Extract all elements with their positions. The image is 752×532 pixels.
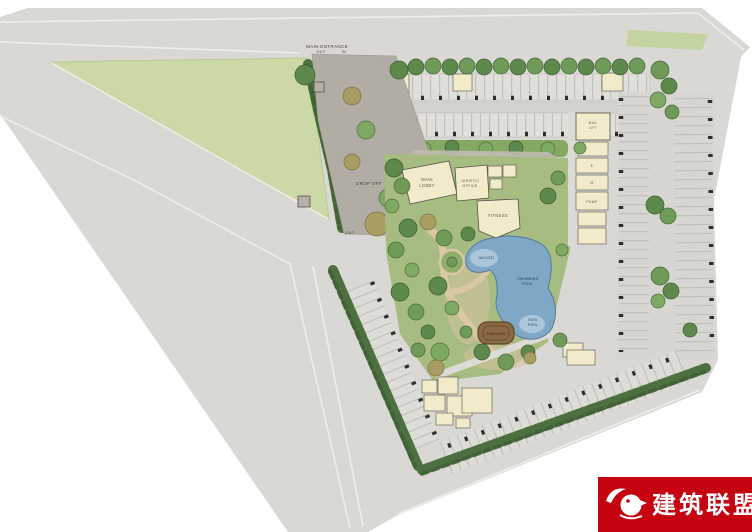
kids-pool-label: KIDS xyxy=(528,318,538,322)
service-room xyxy=(488,166,502,177)
main-lobby-label: MAIN xyxy=(421,177,433,182)
jacuzzi-label: JACUZZI xyxy=(478,256,494,260)
entry-tree xyxy=(390,61,408,79)
parking-east xyxy=(618,92,714,358)
east-court-tree xyxy=(574,142,586,154)
watermark-banner: 建筑联盟 xyxy=(598,477,752,532)
gate-in-label: IN xyxy=(342,50,346,54)
entry-tree xyxy=(295,65,315,85)
juristic-office-label: JURISTIC xyxy=(461,179,480,183)
east-room xyxy=(578,228,606,244)
pump-label: PUMP xyxy=(586,200,598,204)
drive-tree xyxy=(343,87,361,105)
drive-tree xyxy=(357,121,375,139)
site-plan: MAIN ENTRANCE OUT IN DROP OFF OUT MAIN L… xyxy=(0,0,752,532)
side-out-label: OUT xyxy=(346,231,355,235)
svg-text:POOL: POOL xyxy=(528,323,539,327)
pavilion-label: PAVILION xyxy=(487,332,506,336)
room-e-label: E xyxy=(591,164,594,168)
watermark-text: 建筑联盟 xyxy=(652,491,752,519)
drive-tree xyxy=(344,154,360,170)
service-room xyxy=(490,179,502,189)
svg-text:LOBBY: LOBBY xyxy=(419,183,434,188)
guard-booth xyxy=(298,196,310,207)
utility-room xyxy=(602,73,623,91)
parking-north xyxy=(394,73,650,137)
mail-lift-label: MAIL xyxy=(589,121,598,125)
site-plan-page: MAIN ENTRANCE OUT IN DROP OFF OUT MAIN L… xyxy=(0,0,752,532)
gate-out-label: OUT xyxy=(317,50,326,54)
room-m-label: M xyxy=(590,181,593,185)
guard-booth xyxy=(314,82,324,92)
svg-text:OFFICE: OFFICE xyxy=(463,184,478,188)
juristic-office-building xyxy=(455,165,489,201)
drop-off-label: DROP OFF xyxy=(356,181,382,186)
svg-text:POOL: POOL xyxy=(522,282,533,286)
east-walkway xyxy=(568,112,575,246)
service-room xyxy=(503,165,516,177)
utility-room xyxy=(453,74,472,91)
south-room xyxy=(567,350,595,365)
fitness-label: FITNESS xyxy=(488,213,508,218)
swimming-pool-label: SWIMMING xyxy=(517,277,539,281)
main-entrance-label: MAIN ENTRANCE xyxy=(306,44,348,49)
east-room xyxy=(578,212,606,226)
svg-text:LIFT: LIFT xyxy=(589,126,597,130)
